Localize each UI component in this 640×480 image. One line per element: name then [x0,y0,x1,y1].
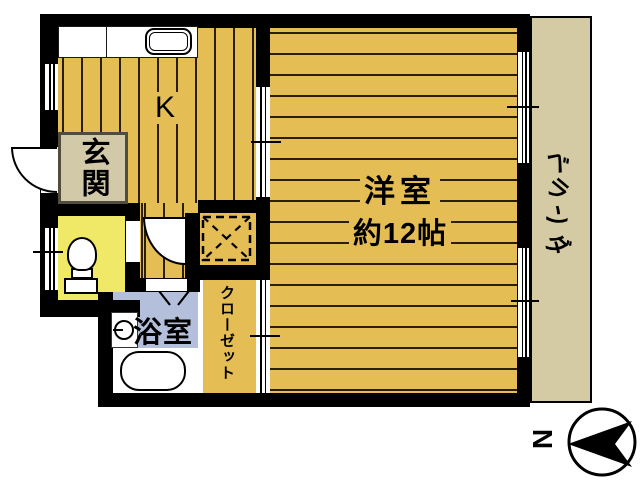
western-room-name: 洋室 [360,174,440,209]
genkan-area: 玄関 [58,132,128,204]
genkan-label: 玄関 [72,137,114,199]
window-tick [511,300,539,302]
compass-north-label: N [526,424,558,454]
kitchen-sink-icon [145,28,192,55]
window-left-lower [45,228,58,290]
toilet-tank-icon [64,278,98,294]
bathroom-label: 浴室 [133,309,193,351]
closet-door-tick [250,335,280,337]
bath-folding-door-icon [156,290,192,308]
sink-inner [149,32,188,51]
bath-doorway-step [145,278,188,292]
window-right-lower [518,248,529,357]
counter-divider [106,26,107,58]
kitchen-label: K [148,92,182,124]
wall-alcove-bottom [198,265,256,280]
window-tick [33,251,63,253]
closet-label: クローゼット [216,285,237,391]
western-room-size: 約12帖 [349,218,451,250]
toilet-bowl-icon [67,237,97,271]
veranda-label: ベランダ [542,149,572,258]
wall-bottom [98,393,530,407]
compass-north-arrow-icon [560,402,640,480]
entrance-door-arc [11,147,57,193]
window-tick [507,106,539,108]
floor-plan: 玄関 K 浴室 クローゼット 洋室 約12帖 ベランダ N [0,0,640,480]
western-room-label: 洋室 約12帖 [320,174,480,257]
window-left-upper [45,64,58,110]
sliding-door-tick [251,141,281,143]
wall-alcove-top [198,200,256,213]
washing-machine-handle [113,329,123,331]
toilet-door-opening [126,220,140,263]
refrigerator-space-icon [199,214,255,264]
bathtub-icon [120,351,186,391]
